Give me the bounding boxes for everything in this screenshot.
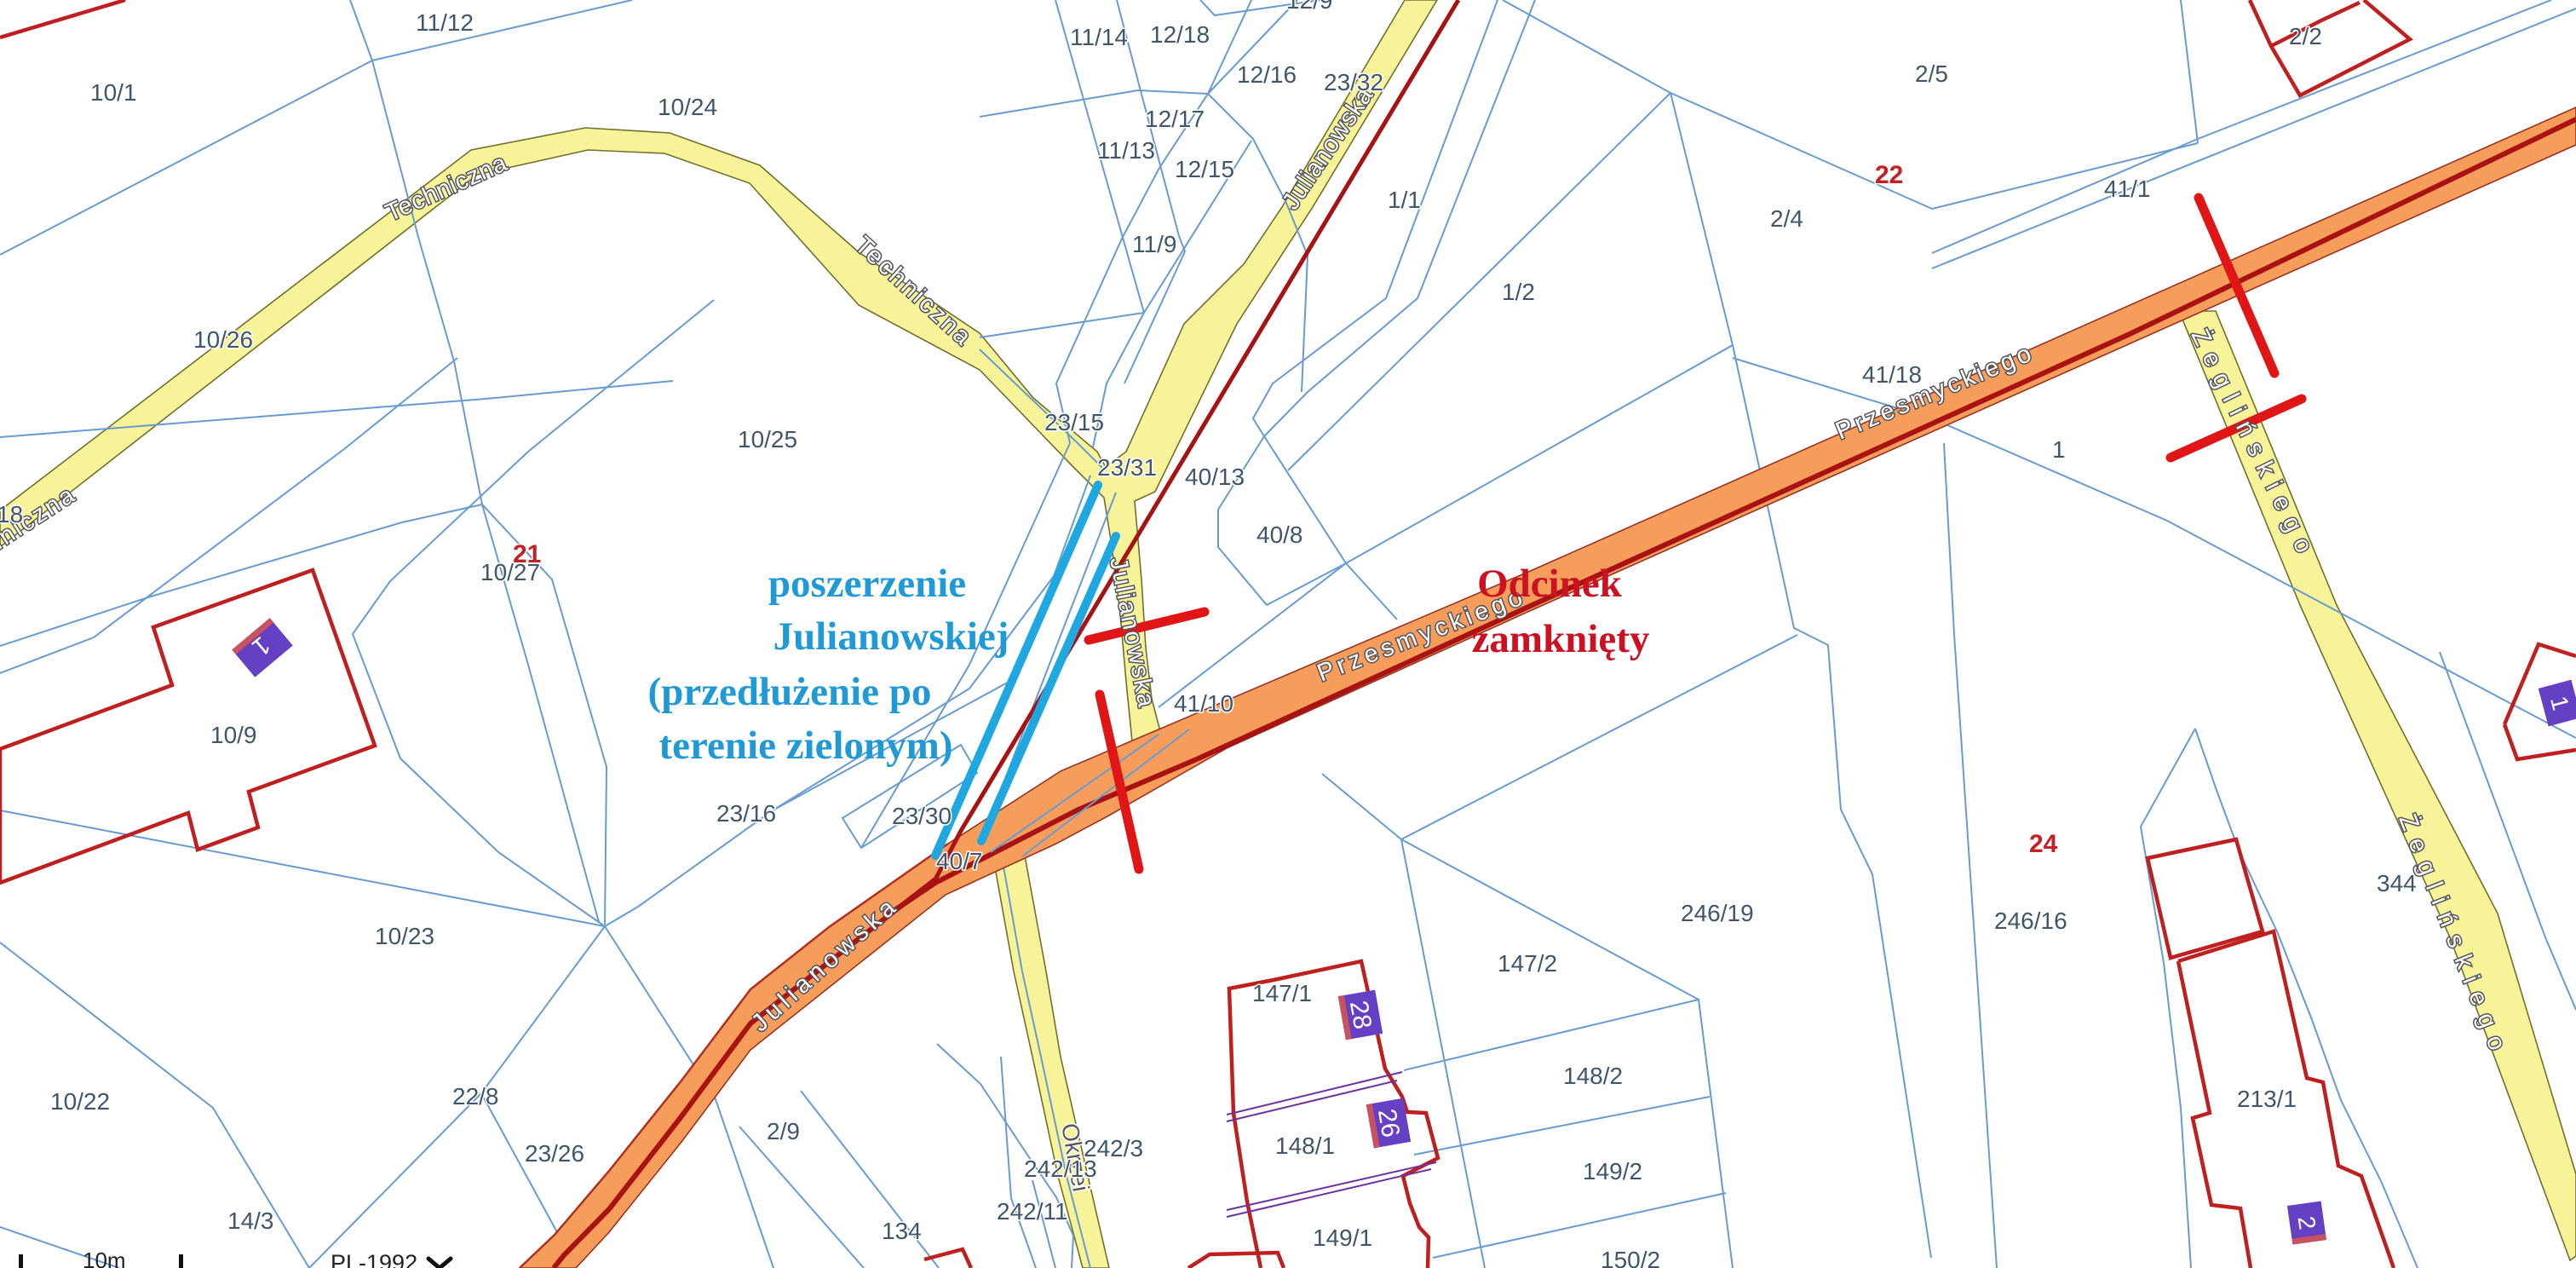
svg-text:2/5: 2/5	[1915, 61, 1948, 87]
svg-text:1/1: 1/1	[1388, 187, 1421, 213]
svg-text:147/2: 147/2	[1498, 950, 1557, 977]
svg-text:PL-1992: PL-1992	[331, 1250, 417, 1268]
svg-text:10/25: 10/25	[738, 426, 797, 452]
svg-text:40/8: 40/8	[1256, 522, 1303, 548]
svg-text:11/9: 11/9	[1132, 231, 1176, 257]
svg-text:1/2: 1/2	[1502, 279, 1535, 305]
svg-text:2/4: 2/4	[1770, 205, 1803, 232]
svg-text:(przedłużenie po: (przedłużenie po	[648, 670, 932, 714]
svg-text:149/1: 149/1	[1313, 1225, 1372, 1251]
svg-text:12/16: 12/16	[1237, 61, 1297, 88]
svg-text:26: 26	[1372, 1107, 1405, 1140]
svg-text:246/19: 246/19	[1681, 900, 1754, 926]
svg-text:Odcinek: Odcinek	[1477, 562, 1623, 606]
svg-text:2/2: 2/2	[2289, 23, 2322, 49]
svg-text:18: 18	[0, 501, 23, 527]
svg-text:Julianowskiej: Julianowskiej	[773, 614, 1009, 659]
svg-text:23/32: 23/32	[1324, 69, 1383, 95]
svg-text:23/31: 23/31	[1097, 454, 1157, 481]
svg-text:22/8: 22/8	[452, 1083, 499, 1109]
svg-text:23/30: 23/30	[892, 803, 952, 829]
svg-text:10/23: 10/23	[375, 923, 434, 949]
svg-text:134: 134	[882, 1218, 922, 1244]
svg-text:344: 344	[2377, 870, 2417, 896]
svg-text:150/2: 150/2	[1601, 1247, 1660, 1268]
svg-text:213/1: 213/1	[2237, 1086, 2297, 1112]
svg-text:148/1: 148/1	[1275, 1133, 1335, 1159]
svg-text:poszerzenie: poszerzenie	[768, 562, 966, 606]
svg-text:11/12: 11/12	[416, 9, 474, 36]
svg-text:246/16: 246/16	[1994, 908, 2067, 934]
svg-text:10/26: 10/26	[193, 326, 253, 353]
svg-text:148/2: 148/2	[1563, 1063, 1623, 1089]
svg-text:41/10: 41/10	[1174, 690, 1233, 717]
svg-text:11/13: 11/13	[1097, 137, 1155, 164]
svg-text:23/16: 23/16	[716, 800, 776, 827]
svg-text:14/3: 14/3	[227, 1207, 274, 1234]
svg-text:40/13: 40/13	[1185, 464, 1245, 490]
svg-text:10/9: 10/9	[210, 722, 257, 748]
svg-text:28: 28	[1344, 999, 1377, 1032]
svg-text:242/13: 242/13	[1024, 1156, 1097, 1182]
svg-text:10/22: 10/22	[50, 1088, 110, 1115]
svg-text:10/24: 10/24	[658, 94, 717, 120]
svg-text:2/9: 2/9	[767, 1118, 800, 1144]
svg-text:23/15: 23/15	[1044, 409, 1104, 435]
svg-text:12/17: 12/17	[1145, 106, 1205, 132]
svg-text:40/7: 40/7	[936, 848, 983, 874]
svg-text:147/1: 147/1	[1252, 980, 1312, 1006]
svg-text:10m: 10m	[83, 1248, 126, 1268]
svg-text:41/1: 41/1	[2104, 176, 2151, 202]
svg-text:terenie zielonym): terenie zielonym)	[659, 723, 953, 768]
svg-text:1: 1	[2052, 436, 2066, 463]
svg-text:22: 22	[1875, 161, 1903, 189]
svg-text:12/18: 12/18	[1150, 21, 1210, 48]
svg-text:41/18: 41/18	[1862, 361, 1922, 388]
svg-text:12/9: 12/9	[1286, 0, 1333, 14]
svg-text:242/11: 242/11	[997, 1198, 1068, 1225]
svg-text:11/14: 11/14	[1070, 24, 1128, 50]
svg-text:12/15: 12/15	[1175, 156, 1234, 182]
svg-text:149/2: 149/2	[1583, 1158, 1642, 1184]
svg-text:10/1: 10/1	[90, 79, 137, 106]
svg-text:24: 24	[2029, 830, 2058, 858]
svg-text:zamknięty: zamknięty	[1472, 617, 1650, 661]
svg-text:10/27: 10/27	[480, 559, 540, 585]
svg-text:23/26: 23/26	[525, 1140, 584, 1167]
